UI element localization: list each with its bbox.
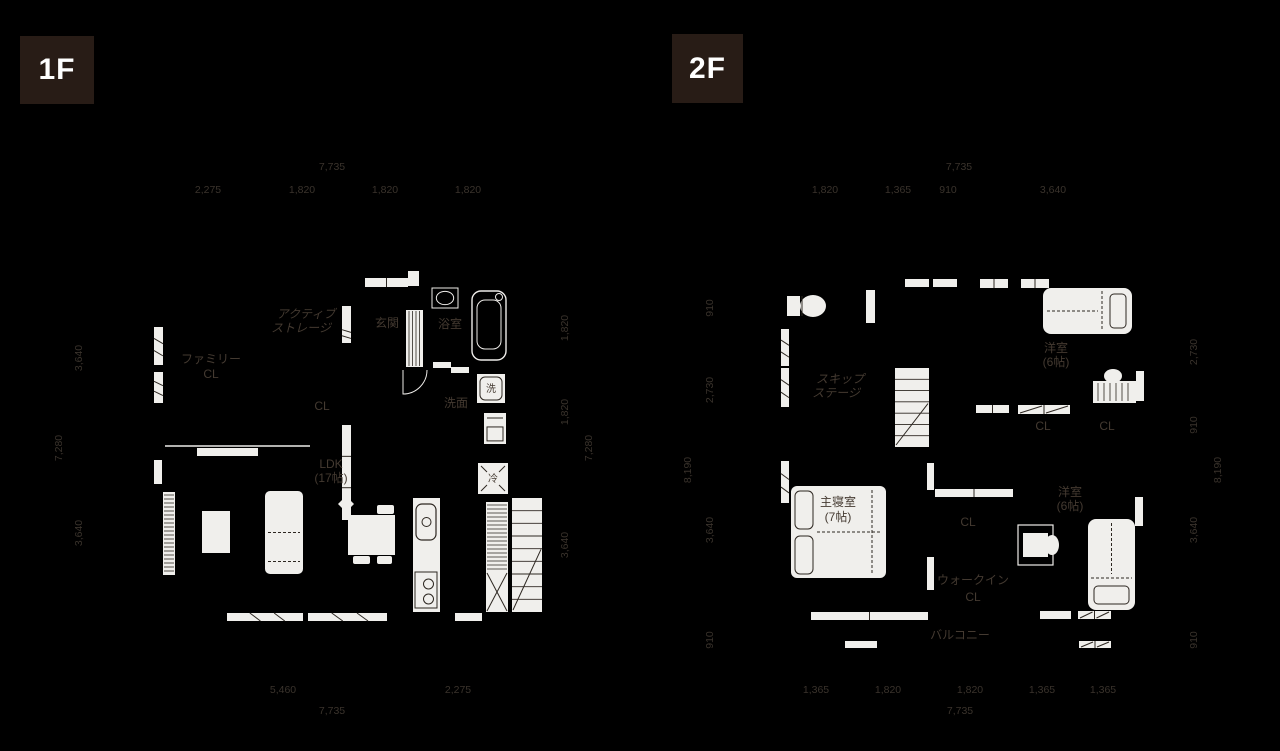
svg-text:910: 910 bbox=[1188, 631, 1200, 649]
vanity-cabinet bbox=[484, 413, 506, 444]
svg-text:1,820: 1,820 bbox=[957, 684, 983, 696]
svg-text:洋室: 洋室 bbox=[1058, 484, 1082, 499]
svg-text:(6帖): (6帖) bbox=[1043, 354, 1070, 369]
room-label: CL bbox=[203, 367, 219, 381]
sliding-door bbox=[433, 362, 451, 368]
chair bbox=[338, 496, 354, 512]
room-label: (6帖) bbox=[1057, 498, 1084, 513]
porch-step bbox=[408, 271, 419, 286]
closet-door bbox=[1018, 405, 1070, 414]
svg-text:CL: CL bbox=[960, 515, 976, 529]
dim-label: 3,640 bbox=[704, 517, 716, 543]
closet-door bbox=[927, 557, 934, 590]
window bbox=[1078, 611, 1111, 619]
dim-label: 3,640 bbox=[559, 532, 571, 558]
svg-text:2,730: 2,730 bbox=[704, 377, 716, 403]
closet-door bbox=[935, 489, 1013, 497]
stairs bbox=[512, 498, 542, 612]
dim-label: 2,730 bbox=[1188, 339, 1200, 365]
door-swing bbox=[403, 370, 427, 394]
balcony-window bbox=[811, 612, 928, 620]
dim-label: 3,640 bbox=[73, 345, 85, 371]
svg-text:CL: CL bbox=[203, 367, 219, 381]
pantry-shelf bbox=[486, 502, 508, 572]
window bbox=[1135, 497, 1143, 526]
svg-text:3,640: 3,640 bbox=[73, 520, 85, 546]
svg-text:CL: CL bbox=[965, 590, 981, 604]
room-label: ステージ bbox=[811, 386, 862, 400]
dim-label: 8,190 bbox=[1212, 457, 1224, 483]
bathtub bbox=[472, 291, 506, 360]
svg-text:1,820: 1,820 bbox=[559, 315, 571, 341]
chair bbox=[377, 505, 394, 514]
room-label: 洗 bbox=[486, 383, 496, 395]
room-label: 洋室 bbox=[1044, 340, 1068, 355]
room-label: 玄関 bbox=[375, 315, 399, 330]
window bbox=[1021, 279, 1049, 288]
room-label: (17帖) bbox=[314, 470, 347, 485]
dim-label: 1,820 bbox=[559, 399, 571, 425]
svg-text:910: 910 bbox=[1188, 416, 1200, 434]
svg-text:冷: 冷 bbox=[488, 472, 498, 485]
balcony-rail bbox=[1079, 641, 1111, 648]
window bbox=[933, 279, 957, 287]
room-label: (7帖) bbox=[825, 509, 852, 524]
svg-text:CL: CL bbox=[314, 399, 330, 413]
svg-text:洗: 洗 bbox=[486, 383, 496, 395]
room-label: CL bbox=[960, 515, 976, 529]
svg-text:(6帖): (6帖) bbox=[1057, 498, 1084, 513]
chair bbox=[1104, 369, 1122, 383]
dim-label: 1,365 bbox=[803, 684, 829, 696]
storage-opening bbox=[342, 306, 351, 324]
kitchen-counter bbox=[413, 498, 440, 612]
dim-label: 910 bbox=[939, 184, 957, 196]
dim-label: 7,735 bbox=[946, 161, 972, 173]
svg-text:7,280: 7,280 bbox=[583, 435, 595, 461]
window bbox=[781, 368, 789, 407]
window bbox=[1040, 611, 1071, 619]
svg-text:910: 910 bbox=[704, 299, 716, 317]
floor-badge-2f: 2F bbox=[672, 34, 743, 103]
single-bed bbox=[1088, 519, 1135, 610]
room-label: LDK bbox=[319, 457, 342, 471]
svg-text:(7帖): (7帖) bbox=[825, 509, 852, 524]
dim-label: 1,820 bbox=[372, 184, 398, 196]
toilet bbox=[787, 295, 826, 317]
dining-table bbox=[348, 515, 395, 555]
dim-label: 1,365 bbox=[1090, 684, 1116, 696]
room-label: CL bbox=[314, 399, 330, 413]
door bbox=[866, 290, 875, 323]
dim-label: 1,820 bbox=[957, 684, 983, 696]
room-label: 冷 bbox=[488, 472, 498, 485]
desk bbox=[1093, 381, 1136, 403]
dim-label: 910 bbox=[1188, 631, 1200, 649]
entrance-floor bbox=[406, 310, 423, 367]
window bbox=[781, 329, 789, 366]
sliding-door bbox=[451, 367, 469, 373]
room-label: ファミリー bbox=[181, 352, 241, 366]
svg-text:1,820: 1,820 bbox=[875, 684, 901, 696]
floor-badge-1f-label: 1F bbox=[38, 53, 75, 87]
tv-board bbox=[163, 492, 175, 575]
svg-text:7,735: 7,735 bbox=[319, 705, 345, 717]
svg-text:1,820: 1,820 bbox=[812, 184, 838, 196]
svg-text:2,275: 2,275 bbox=[195, 184, 221, 196]
svg-text:1,365: 1,365 bbox=[1090, 684, 1116, 696]
chair bbox=[377, 556, 392, 564]
svg-text:3,640: 3,640 bbox=[1188, 517, 1200, 543]
dim-label: 5,460 bbox=[270, 684, 296, 696]
window bbox=[227, 613, 303, 621]
chair bbox=[1045, 535, 1059, 555]
dim-label: 3,640 bbox=[1040, 184, 1066, 196]
dim-label: 1,365 bbox=[885, 184, 911, 196]
dim-label: 7,280 bbox=[583, 435, 595, 461]
svg-text:主寝室: 主寝室 bbox=[820, 494, 856, 509]
svg-text:3,640: 3,640 bbox=[559, 532, 571, 558]
svg-text:玄関: 玄関 bbox=[375, 315, 399, 330]
svg-text:2,275: 2,275 bbox=[445, 684, 471, 696]
dim-label: 7,735 bbox=[319, 161, 345, 173]
svg-text:浴室: 浴室 bbox=[438, 316, 462, 331]
window bbox=[980, 279, 1008, 288]
dim-label: 8,190 bbox=[682, 457, 694, 483]
svg-text:洗面: 洗面 bbox=[444, 396, 468, 410]
porch-door bbox=[365, 278, 408, 287]
dim-label: 7,280 bbox=[53, 435, 65, 461]
svg-text:1,820: 1,820 bbox=[372, 184, 398, 196]
window bbox=[154, 327, 163, 365]
room-label: 洋室 bbox=[1058, 484, 1082, 499]
window bbox=[455, 613, 482, 621]
dim-label: 2,275 bbox=[195, 184, 221, 196]
svg-text:1,820: 1,820 bbox=[455, 184, 481, 196]
svg-text:バルコニー: バルコニー bbox=[930, 628, 990, 642]
svg-text:7,735: 7,735 bbox=[319, 161, 345, 173]
svg-text:3,640: 3,640 bbox=[73, 345, 85, 371]
closet-door bbox=[927, 463, 934, 490]
dim-label: 1,820 bbox=[875, 684, 901, 696]
dim-label: 3,640 bbox=[1188, 517, 1200, 543]
dim-label: 1,820 bbox=[289, 184, 315, 196]
room-label: 浴室 bbox=[438, 316, 462, 331]
svg-text:洋室: 洋室 bbox=[1044, 340, 1068, 355]
window bbox=[1136, 371, 1144, 401]
svg-text:1,365: 1,365 bbox=[803, 684, 829, 696]
window bbox=[781, 461, 789, 503]
svg-text:7,280: 7,280 bbox=[53, 435, 65, 461]
svg-text:ウォークイン: ウォークイン bbox=[937, 573, 1009, 587]
svg-text:(17帖): (17帖) bbox=[314, 470, 347, 485]
svg-text:ファミリー: ファミリー bbox=[181, 352, 241, 366]
svg-text:910: 910 bbox=[704, 631, 716, 649]
sliding-door bbox=[197, 448, 258, 456]
dim-label: 2,275 bbox=[445, 684, 471, 696]
window bbox=[905, 279, 929, 287]
svg-text:アクティブ: アクティブ bbox=[276, 306, 338, 321]
room-label: ストレージ bbox=[270, 321, 333, 335]
coffee-table bbox=[202, 511, 230, 553]
stairs bbox=[895, 368, 929, 447]
svg-text:2,730: 2,730 bbox=[1188, 339, 1200, 365]
svg-text:8,190: 8,190 bbox=[1212, 457, 1224, 483]
svg-text:1,365: 1,365 bbox=[885, 184, 911, 196]
dim-label: 1,365 bbox=[1029, 684, 1055, 696]
window bbox=[308, 613, 387, 621]
svg-text:3,640: 3,640 bbox=[704, 517, 716, 543]
balcony-rail bbox=[845, 641, 877, 648]
svg-text:910: 910 bbox=[939, 184, 957, 196]
dim-label: 1,820 bbox=[455, 184, 481, 196]
room-label: ウォークイン bbox=[937, 573, 1009, 587]
svg-text:1,820: 1,820 bbox=[289, 184, 315, 196]
closet-door bbox=[976, 405, 1009, 413]
dim-label: 3,640 bbox=[73, 520, 85, 546]
floor-badge-1f: 1F bbox=[20, 36, 94, 104]
svg-text:スキップ: スキップ bbox=[815, 372, 866, 386]
svg-text:5,460: 5,460 bbox=[270, 684, 296, 696]
storage-window bbox=[342, 324, 351, 343]
window bbox=[154, 460, 162, 484]
svg-text:1,820: 1,820 bbox=[559, 399, 571, 425]
pantry-door bbox=[486, 572, 508, 612]
svg-text:1,365: 1,365 bbox=[1029, 684, 1055, 696]
dim-label: 7,735 bbox=[319, 705, 345, 717]
room-label: CL bbox=[965, 590, 981, 604]
single-bed bbox=[1043, 288, 1132, 334]
svg-text:ストレージ: ストレージ bbox=[270, 321, 333, 335]
dim-label: 1,820 bbox=[559, 315, 571, 341]
svg-text:8,190: 8,190 bbox=[682, 457, 694, 483]
dim-label: 910 bbox=[1188, 416, 1200, 434]
svg-text:7,735: 7,735 bbox=[947, 705, 973, 717]
room-label: CL bbox=[1099, 419, 1115, 433]
svg-text:CL: CL bbox=[1035, 419, 1051, 433]
dim-label: 910 bbox=[704, 299, 716, 317]
floor-badge-2f-label: 2F bbox=[689, 52, 726, 86]
svg-text:3,640: 3,640 bbox=[1040, 184, 1066, 196]
svg-text:7,735: 7,735 bbox=[946, 161, 972, 173]
svg-text:LDK: LDK bbox=[319, 457, 342, 471]
room-label: CL bbox=[1035, 419, 1051, 433]
dim-label: 910 bbox=[704, 631, 716, 649]
room-label: バルコニー bbox=[930, 628, 990, 642]
dim-label: 1,820 bbox=[812, 184, 838, 196]
sofa bbox=[265, 491, 303, 574]
room-label: (6帖) bbox=[1043, 354, 1070, 369]
floorplan-canvas: アクティブストレージファミリーCL玄関浴室洗洗面CLLDK(17帖)冷7,735… bbox=[0, 0, 1280, 751]
bath-counter bbox=[432, 288, 458, 308]
room-label: アクティブ bbox=[276, 306, 338, 321]
svg-text:CL: CL bbox=[1099, 419, 1115, 433]
chair bbox=[353, 556, 370, 564]
dim-label: 7,735 bbox=[947, 705, 973, 717]
window bbox=[154, 372, 163, 403]
svg-text:ステージ: ステージ bbox=[811, 386, 862, 400]
room-label: 主寝室 bbox=[820, 494, 856, 509]
dim-label: 2,730 bbox=[704, 377, 716, 403]
floorplan-svg: アクティブストレージファミリーCL玄関浴室洗洗面CLLDK(17帖)冷7,735… bbox=[0, 0, 1280, 751]
room-label: スキップ bbox=[815, 372, 866, 386]
room-label: 洗面 bbox=[444, 396, 468, 410]
